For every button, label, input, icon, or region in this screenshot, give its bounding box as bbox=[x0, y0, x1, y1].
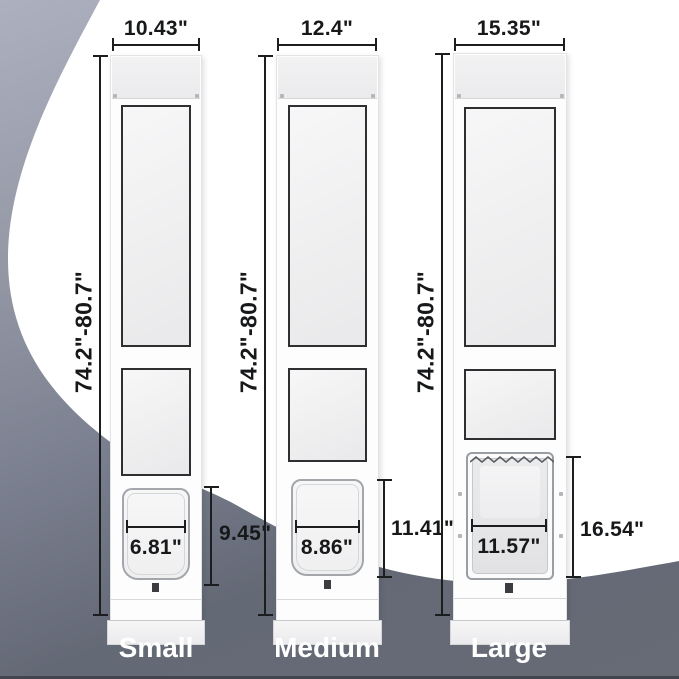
large-width-dimension-line bbox=[454, 44, 565, 46]
small-door-rail-line bbox=[111, 599, 201, 600]
small-flap-width-dimension-line bbox=[126, 526, 186, 528]
medium-flap-width-value: 8.86" bbox=[301, 536, 353, 560]
large-flap-height-value: 16.54" bbox=[580, 518, 644, 542]
large-door-rail-line bbox=[454, 598, 566, 599]
medium-flap-height-dimension-line bbox=[383, 479, 385, 578]
large-flap-width-dimension-line bbox=[471, 525, 547, 527]
small-height-dimension-line bbox=[99, 55, 101, 616]
large-flap-width-value: 11.57" bbox=[477, 535, 540, 559]
small-width-value: 10.43" bbox=[124, 17, 188, 41]
tick bbox=[258, 614, 273, 616]
lock-pin-icon bbox=[324, 580, 331, 589]
tick bbox=[358, 520, 360, 533]
tick bbox=[184, 520, 186, 533]
brush-seal-icon bbox=[470, 455, 554, 463]
tick bbox=[471, 519, 473, 532]
medium-door-lower-glass bbox=[288, 368, 367, 462]
large-height-dimension-line bbox=[441, 53, 443, 616]
medium-flap-height-value: 11.41" bbox=[391, 517, 454, 541]
screw-icon bbox=[457, 94, 461, 98]
small-height-value: 74.2"-80.7" bbox=[71, 271, 98, 393]
tick bbox=[204, 584, 219, 586]
screw-icon bbox=[559, 534, 563, 538]
large-width-value: 15.35" bbox=[477, 17, 541, 41]
medium-size-label: Medium bbox=[274, 632, 380, 664]
small-pet-flap bbox=[122, 488, 190, 580]
pet-door-size-diagram: 10.43" 74.2"-80.7" 6.81" 9.45" Small 12.… bbox=[0, 0, 679, 679]
screw-icon bbox=[195, 94, 199, 98]
medium-door-rail-line bbox=[277, 599, 378, 600]
medium-door-upper-glass bbox=[288, 105, 367, 347]
tick bbox=[198, 38, 200, 51]
small-door-lower-glass bbox=[121, 368, 191, 476]
screw-icon bbox=[560, 94, 564, 98]
tick bbox=[566, 576, 581, 578]
medium-width-value: 12.4" bbox=[301, 17, 353, 41]
lock-pin-icon bbox=[152, 583, 159, 592]
tick bbox=[204, 486, 219, 488]
tick bbox=[377, 576, 392, 578]
tick bbox=[295, 520, 297, 533]
medium-height-dimension-line bbox=[264, 55, 266, 616]
medium-flap-width-dimension-line bbox=[295, 526, 360, 528]
large-size-label: Large bbox=[471, 632, 547, 664]
tick bbox=[375, 38, 377, 51]
small-door-upper-glass bbox=[121, 105, 191, 347]
large-door-upper-glass bbox=[464, 107, 556, 347]
large-door-top-cap bbox=[455, 55, 565, 99]
large-pet-flap bbox=[466, 452, 554, 580]
tick bbox=[93, 614, 108, 616]
medium-height-value: 74.2"-80.7" bbox=[236, 271, 263, 393]
tick bbox=[545, 519, 547, 532]
medium-width-dimension-line bbox=[277, 44, 377, 46]
small-size-label: Small bbox=[119, 632, 194, 664]
tick bbox=[563, 38, 565, 51]
medium-door-top-cap bbox=[278, 57, 377, 99]
small-door-top-cap bbox=[112, 57, 200, 99]
small-flap-height-dimension-line bbox=[210, 486, 212, 586]
small-width-dimension-line bbox=[112, 44, 200, 46]
screw-icon bbox=[280, 94, 284, 98]
small-flap-width-value: 6.81" bbox=[130, 536, 182, 560]
tick bbox=[126, 520, 128, 533]
large-door-lower-glass bbox=[464, 369, 556, 440]
tick bbox=[454, 38, 456, 51]
tick bbox=[566, 456, 581, 458]
tick bbox=[377, 479, 392, 481]
screw-icon bbox=[559, 492, 563, 496]
tick bbox=[277, 38, 279, 51]
tick bbox=[258, 55, 273, 57]
large-height-value: 74.2"-80.7" bbox=[413, 271, 440, 393]
tick bbox=[112, 38, 114, 51]
lock-pin-icon bbox=[505, 583, 513, 593]
large-flap-height-dimension-line bbox=[572, 456, 574, 578]
tick bbox=[435, 614, 450, 616]
screw-icon bbox=[113, 94, 117, 98]
small-pet-flap-inner bbox=[127, 493, 185, 575]
tick bbox=[93, 55, 108, 57]
screw-icon bbox=[371, 94, 375, 98]
tick bbox=[435, 53, 450, 55]
large-pet-flap-window bbox=[480, 466, 540, 518]
screw-icon bbox=[458, 534, 462, 538]
screw-icon bbox=[458, 492, 462, 496]
